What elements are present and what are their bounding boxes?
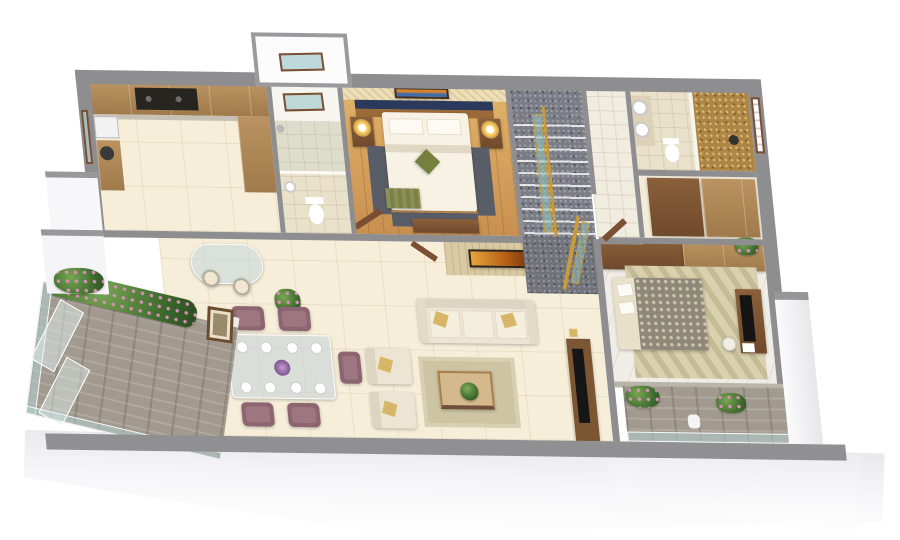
- desk-paper: [742, 343, 755, 352]
- bedroom-door-leaf: [354, 208, 383, 230]
- armchair: [365, 348, 413, 385]
- plate: [286, 342, 299, 354]
- pillow: [388, 118, 424, 134]
- gold-mosaic-shower: [692, 90, 756, 171]
- bathroom-window: [283, 93, 325, 112]
- washing-machine: [93, 116, 119, 138]
- kitchen: [88, 82, 281, 233]
- floor-plan-render: [0, 0, 900, 540]
- washbasin: [284, 181, 297, 193]
- wardrobe: [647, 178, 705, 237]
- pillow: [426, 119, 462, 135]
- dining-chair: [277, 307, 311, 331]
- dining-chair: [287, 403, 321, 427]
- sofa-back: [416, 299, 535, 310]
- white-pot: [687, 414, 700, 428]
- wardrobe: [701, 179, 761, 238]
- skylight-window: [279, 53, 325, 72]
- bedroom-2: [600, 239, 777, 383]
- toilet-bowl: [664, 144, 680, 162]
- master-bedroom: [339, 86, 520, 237]
- floor-plan: [88, 82, 783, 444]
- dining-chair: [338, 352, 363, 384]
- gold-decor: [569, 329, 578, 337]
- shower-head: [276, 125, 285, 133]
- house-plant: [459, 382, 479, 400]
- side-ledge: [45, 171, 103, 230]
- table-lamp: [358, 124, 367, 132]
- breakfast-counter: [189, 243, 265, 284]
- utility-shaft: [251, 32, 352, 87]
- stair-landing: [522, 236, 602, 294]
- coffee-table: [437, 371, 495, 410]
- flower-centerpiece: [273, 360, 291, 376]
- master-bathroom: [628, 90, 756, 172]
- armchair: [370, 392, 418, 429]
- cooktop: [134, 88, 198, 111]
- three-seat-sofa: [416, 299, 538, 345]
- pillow: [616, 283, 635, 298]
- dining-chair: [241, 402, 275, 426]
- plate: [240, 381, 253, 393]
- plate: [236, 341, 249, 353]
- patterned-duvet: [634, 278, 709, 351]
- bedroom-door-leaf: [410, 241, 437, 262]
- bed-bench: [385, 188, 421, 209]
- flower-planter: [625, 386, 661, 409]
- seascape-artwork: [394, 87, 449, 99]
- table-lamp: [486, 126, 495, 134]
- dining-table: [226, 334, 336, 400]
- wall-picture-frame: [206, 306, 233, 344]
- plate: [314, 382, 327, 394]
- plate: [310, 342, 323, 354]
- foot-dresser: [412, 219, 479, 234]
- ledge-planter: [53, 268, 106, 295]
- shower-bucket: [728, 135, 739, 145]
- seat-cushion: [461, 310, 495, 338]
- plate: [290, 382, 303, 394]
- plate: [264, 381, 277, 393]
- plate: [260, 341, 273, 353]
- dressing-area: [637, 176, 763, 240]
- pillow: [617, 301, 636, 316]
- flower-planter: [715, 393, 747, 413]
